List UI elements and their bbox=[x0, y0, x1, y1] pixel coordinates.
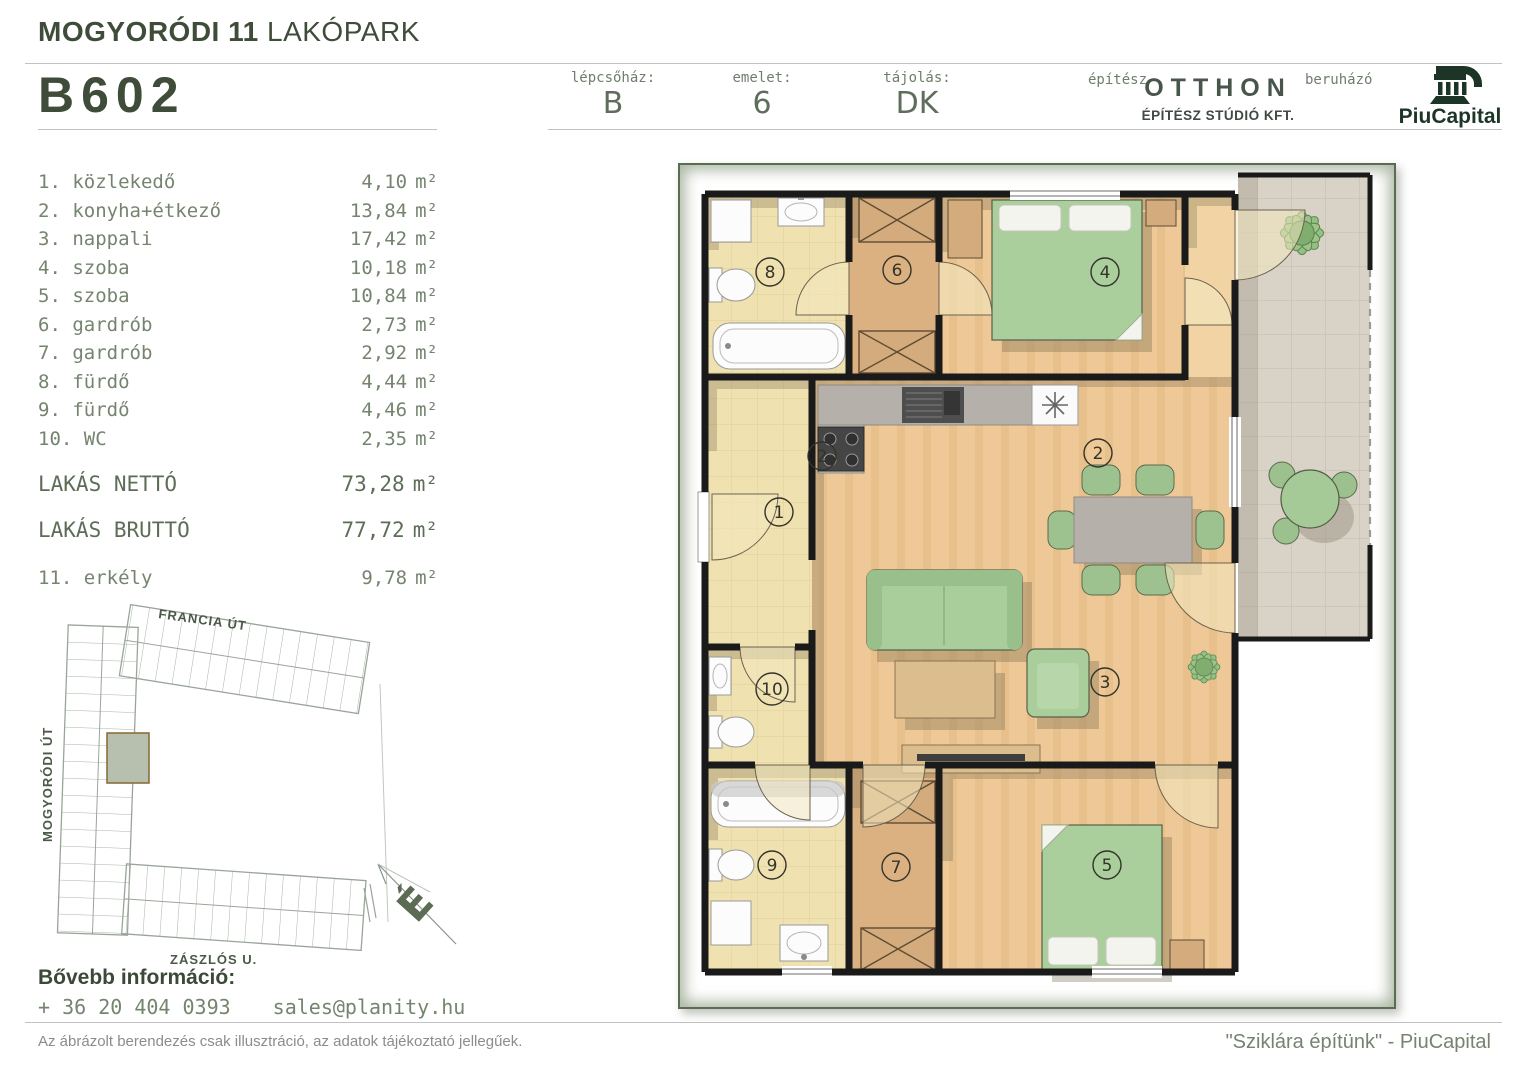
area-unit: m² bbox=[415, 200, 438, 222]
plant-icon bbox=[1188, 651, 1220, 683]
kitchen-sink-icon bbox=[902, 387, 964, 423]
washing-machine-icon bbox=[711, 200, 751, 242]
room-area: 2,73 bbox=[361, 314, 407, 336]
room-area: 17,42 bbox=[350, 228, 407, 250]
room-label: 3. nappali bbox=[38, 225, 152, 254]
area-unit: m² bbox=[413, 472, 438, 496]
chair-icon bbox=[1048, 511, 1076, 549]
chair-icon bbox=[1136, 465, 1174, 495]
pillow-icon bbox=[1048, 937, 1098, 965]
toilet-icon bbox=[709, 268, 755, 302]
staircase-label: lépcsőház: bbox=[571, 70, 655, 86]
svg-text:9: 9 bbox=[767, 856, 778, 876]
area-unit: m² bbox=[415, 371, 438, 393]
fridge-icon bbox=[1032, 385, 1078, 425]
balcony-area: 9,78 bbox=[361, 567, 407, 589]
unit-code: B602 bbox=[38, 66, 186, 124]
room-label: 2. konyha+étkező bbox=[38, 197, 221, 226]
room-row: 4. szoba10,18m² bbox=[38, 254, 438, 283]
net-area-label: LAKÁS NETTÓ bbox=[38, 470, 177, 499]
unit-code-divider bbox=[38, 129, 437, 130]
room-area: 4,10 bbox=[361, 171, 407, 193]
architect-subtitle: ÉPÍTÉSZ STÚDIÓ KFT. bbox=[1142, 108, 1295, 123]
footer-slogan: "Sziklára építünk" - PiuCapital bbox=[1226, 1031, 1491, 1054]
svg-text:1: 1 bbox=[774, 503, 785, 523]
room-area: 4,44 bbox=[361, 371, 407, 393]
armchair-icon bbox=[1027, 649, 1089, 717]
room-area: 2,35 bbox=[361, 428, 407, 450]
building-wing-bottom bbox=[122, 864, 366, 951]
room-row: 3. nappali17,42m² bbox=[38, 225, 438, 254]
room-label: 10. WC bbox=[38, 425, 107, 454]
pillow-icon bbox=[1106, 937, 1156, 965]
room-label: 7. gardrób bbox=[38, 339, 152, 368]
svg-text:5: 5 bbox=[1102, 856, 1113, 876]
balcony-label: 11. erkély bbox=[38, 564, 152, 593]
gross-area-label: LAKÁS BRUTTÓ bbox=[38, 516, 190, 545]
floor-value: 6 bbox=[752, 86, 771, 121]
net-area-value: 73,28 bbox=[341, 472, 404, 496]
small-sink-icon bbox=[709, 657, 731, 695]
gross-area-value: 77,72 bbox=[341, 518, 404, 542]
room-label: 1. közlekedő bbox=[38, 168, 175, 197]
project-name-light: LAKÓPARK bbox=[267, 16, 420, 47]
sink-icon bbox=[780, 925, 828, 961]
contact-email[interactable]: sales@planity.hu bbox=[273, 995, 466, 1019]
orientation-label: tájolás: bbox=[883, 70, 950, 86]
room-row: 5. szoba10,84m² bbox=[38, 282, 438, 311]
sofa-icon bbox=[867, 570, 1022, 650]
toilet-icon bbox=[709, 716, 754, 748]
area-unit: m² bbox=[415, 314, 438, 336]
floor-plan: 1 2 2 3 4 5 6 7 8 9 10 bbox=[680, 165, 1390, 1003]
contact-heading: Bővebb információ: bbox=[38, 966, 235, 990]
room-area: 2,92 bbox=[361, 342, 407, 364]
area-unit: m² bbox=[415, 399, 438, 421]
room-area: 10,18 bbox=[350, 257, 407, 279]
room-label: 4. szoba bbox=[38, 254, 130, 283]
room-label: 9. fürdő bbox=[38, 396, 130, 425]
chair-icon bbox=[1082, 565, 1120, 595]
room-area: 10,84 bbox=[350, 285, 407, 307]
site-plan: FRANCIA ÚT MOGYORÓDI ÚT ZÁSZLÓS U. É bbox=[28, 592, 488, 977]
balcony-row: 11. erkély9,78m² bbox=[38, 564, 438, 593]
orientation-value: DK bbox=[896, 86, 939, 121]
room-list: 1. közlekedő4,10m² 2. konyha+étkező13,84… bbox=[38, 168, 438, 593]
svg-text:8: 8 bbox=[765, 263, 776, 283]
highlighted-unit bbox=[107, 733, 149, 783]
page-title: MOGYORÓDI 11 LAKÓPARK bbox=[38, 16, 420, 48]
area-unit: m² bbox=[415, 285, 438, 307]
svg-text:10: 10 bbox=[761, 680, 783, 700]
chair-icon bbox=[1082, 465, 1120, 495]
contact-phone: + 36 20 404 0393 bbox=[38, 995, 231, 1019]
north-arrow: É bbox=[364, 864, 456, 944]
bathtub-icon bbox=[713, 323, 845, 369]
area-unit: m² bbox=[415, 567, 438, 589]
room-row: 8. fürdő4,44m² bbox=[38, 368, 438, 397]
room-row: 9. fürdő4,46m² bbox=[38, 396, 438, 425]
room-label: 6. gardrób bbox=[38, 311, 152, 340]
north-letter: É bbox=[387, 877, 443, 932]
developer-name: PiuCapital bbox=[1399, 105, 1502, 129]
gross-area-row: LAKÁS BRUTTÓ77,72m² bbox=[38, 516, 438, 545]
toilet-icon bbox=[709, 849, 754, 881]
net-area-row: LAKÁS NETTÓ73,28m² bbox=[38, 470, 438, 499]
area-unit: m² bbox=[413, 518, 438, 542]
room-row: 10. WC2,35m² bbox=[38, 425, 438, 454]
balcony-table-icon bbox=[1281, 470, 1339, 528]
room-label: 8. fürdő bbox=[38, 368, 130, 397]
info-band-divider bbox=[548, 129, 1502, 130]
room-row: 7. gardrób2,92m² bbox=[38, 339, 438, 368]
disclaimer-text: Az ábrázolt berendezés csak illusztráció… bbox=[38, 1033, 522, 1050]
svg-text:2: 2 bbox=[1093, 444, 1104, 464]
room-row: 6. gardrób2,73m² bbox=[38, 311, 438, 340]
chair-icon bbox=[1196, 511, 1224, 549]
piucapital-logo-icon bbox=[1412, 64, 1488, 106]
contact-row: + 36 20 404 0393sales@planity.hu bbox=[38, 995, 507, 1019]
header-divider bbox=[25, 63, 1502, 64]
floor-plan-frame: 1 2 2 3 4 5 6 7 8 9 10 bbox=[678, 163, 1396, 1009]
pillow-icon bbox=[999, 205, 1061, 231]
svg-text:7: 7 bbox=[891, 858, 902, 878]
street-label-bottom: ZÁSZLÓS U. bbox=[170, 952, 257, 967]
pillow-icon bbox=[1069, 205, 1131, 231]
architect-label: építész bbox=[1088, 72, 1147, 88]
area-unit: m² bbox=[415, 228, 438, 250]
room-area: 13,84 bbox=[350, 200, 407, 222]
svg-text:4: 4 bbox=[1100, 263, 1111, 283]
floor-label: emelet: bbox=[732, 70, 791, 86]
svg-text:2: 2 bbox=[817, 447, 828, 467]
area-unit: m² bbox=[415, 342, 438, 364]
svg-text:3: 3 bbox=[1100, 673, 1111, 693]
dining-table-icon bbox=[1074, 497, 1192, 563]
courtyard-line bbox=[380, 684, 388, 922]
area-unit: m² bbox=[415, 171, 438, 193]
coffee-table-icon bbox=[895, 661, 995, 718]
project-name-bold: MOGYORÓDI 11 bbox=[38, 16, 259, 47]
developer-label: beruházó bbox=[1305, 72, 1372, 88]
street-label-left: MOGYORÓDI ÚT bbox=[40, 727, 55, 842]
area-unit: m² bbox=[415, 428, 438, 450]
staircase-value: B bbox=[603, 86, 624, 121]
room-area: 4,46 bbox=[361, 399, 407, 421]
room-label: 5. szoba bbox=[38, 282, 130, 311]
room-row: 2. konyha+étkező13,84m² bbox=[38, 197, 438, 226]
svg-text:6: 6 bbox=[892, 261, 903, 281]
room-row: 1. közlekedő4,10m² bbox=[38, 168, 438, 197]
area-unit: m² bbox=[415, 257, 438, 279]
architect-name: OTTHON bbox=[1144, 74, 1292, 103]
footer-divider bbox=[25, 1022, 1502, 1023]
